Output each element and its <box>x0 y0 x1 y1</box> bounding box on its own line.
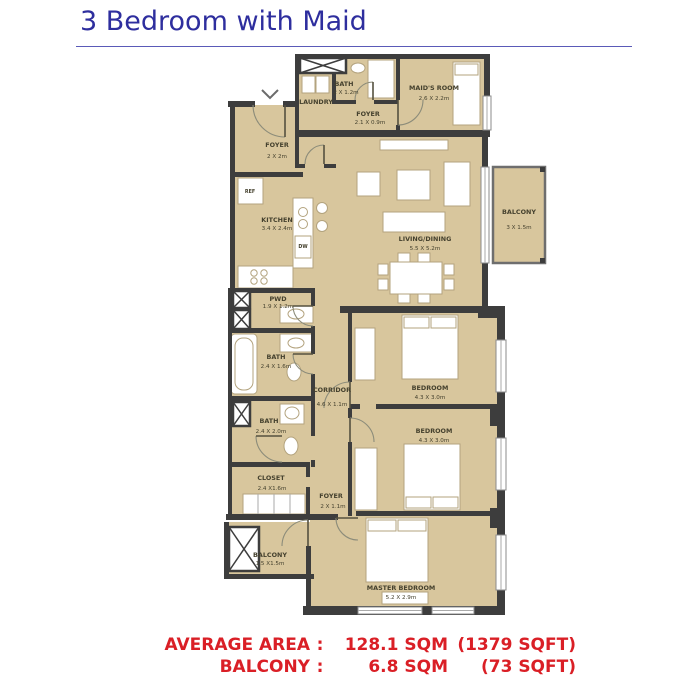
dryer <box>316 76 329 93</box>
wardrobe <box>355 448 377 510</box>
balcony-area-sqft: (73 SQFT) <box>448 656 576 678</box>
label-foyer-entry: FOYER <box>265 141 289 149</box>
dims-balcony-r: 3 X 1.5m <box>506 225 531 231</box>
dims-foyer-top: 2.1 X 0.9m <box>355 120 386 126</box>
dims-bath-mid: 2.4 X 1.6m <box>261 364 292 370</box>
dims-maids-room: 2.6 X 2.2m <box>419 96 450 102</box>
washer <box>302 76 315 93</box>
pillow <box>406 497 431 508</box>
label-bath-top: BATH <box>334 80 353 88</box>
dims-kitchen: 3.4 X 2.4m <box>262 226 293 232</box>
dims-living: 5.5 X 5.2m <box>410 246 441 252</box>
pillow <box>368 520 396 531</box>
label-laundry: LAUNDRY <box>299 98 333 106</box>
dims-master: 5.2 X 2.9m <box>386 595 417 601</box>
entry-arrow-icon <box>262 90 278 98</box>
balcony-area-label: BALCONY <box>140 656 310 678</box>
wardrobe <box>355 328 375 380</box>
stove-counter <box>238 266 293 288</box>
label-living: LIVING/DINING <box>399 235 452 243</box>
chair <box>444 264 454 275</box>
pillow <box>433 497 458 508</box>
dims-bath-top: 2 X 1.2m <box>333 90 358 96</box>
average-area-sqft: (1379 SQFT) <box>448 634 576 656</box>
floor-plan-drawing: BATH 2 X 1.2m MAID'S ROOM 2.6 X 2.2m LAU… <box>0 0 699 700</box>
label-bedroom2: BEDROOM <box>416 427 453 435</box>
bar-stool <box>317 221 328 232</box>
label-maids-room: MAID'S ROOM <box>409 84 459 92</box>
dims-bedroom1: 4.3 X 3.0m <box>415 395 446 401</box>
dims-bedroom2: 4.3 X 3.0m <box>419 438 450 444</box>
label-pwd: PWD <box>269 295 286 303</box>
label-dw: DW <box>298 244 308 250</box>
toilet <box>284 437 298 455</box>
chair <box>418 253 430 262</box>
chair <box>398 253 410 262</box>
kitchen-sink <box>299 220 308 229</box>
floor-plan-page: 3 Bedroom with Maid <box>0 0 699 700</box>
shower <box>368 60 394 98</box>
chair <box>444 279 454 290</box>
chair <box>378 264 388 275</box>
area-summary: AVERAGE AREA : 128.1 SQM (1379 SQFT) BAL… <box>140 634 576 678</box>
average-area-label: AVERAGE AREA <box>140 634 310 656</box>
label-balcony-r: BALCONY <box>502 208 536 216</box>
dims-balcony-bl: 1.5 X1.5m <box>256 561 285 567</box>
dims-pwd: 1.9 X 1.2m <box>263 304 294 310</box>
label-bath-mid: BATH <box>266 353 285 361</box>
bar-stool <box>317 203 328 214</box>
chair <box>418 294 430 303</box>
dims-bath-low: 2.4 X 2.0m <box>256 429 287 435</box>
sofa <box>444 162 470 206</box>
label-bath-low: BATH <box>259 417 278 425</box>
pillow <box>404 317 429 328</box>
pillow <box>398 520 426 531</box>
sink <box>285 407 299 419</box>
dims-foyer-entry: 2 X 2m <box>267 154 287 160</box>
label-foyer-small: FOYER <box>319 492 343 500</box>
sofa <box>383 212 445 232</box>
label-closet: CLOSET <box>257 474 285 482</box>
label-ref: REF <box>245 189 255 195</box>
console <box>380 140 448 150</box>
label-kitchen: KITCHEN <box>261 216 292 224</box>
label-master: MASTER BEDROOM <box>367 584 435 592</box>
pillow <box>455 64 478 75</box>
balcony-area-sqm: 6.8 SQM <box>330 656 448 678</box>
chair <box>398 294 410 303</box>
kitchen-sink <box>299 208 308 217</box>
tv-unit <box>357 172 380 196</box>
dims-foyer-small: 2 X 1.1m <box>320 504 345 510</box>
dims-closet: 2.4 X1.6m <box>258 486 287 492</box>
dims-corridor: 4.6 X 1.1m <box>317 402 348 408</box>
label-balcony-bl: BALCONY <box>253 551 287 559</box>
label-foyer-top: FOYER <box>356 110 380 118</box>
armchair <box>397 170 430 200</box>
colon: : <box>310 656 330 678</box>
colon: : <box>310 634 330 656</box>
balcony-area-row: BALCONY : 6.8 SQM (73 SQFT) <box>140 656 576 678</box>
dining-table <box>390 262 442 294</box>
average-area-sqm: 128.1 SQM <box>330 634 448 656</box>
label-bedroom1: BEDROOM <box>412 384 449 392</box>
chair <box>378 279 388 290</box>
sink <box>351 63 365 73</box>
average-area-row: AVERAGE AREA : 128.1 SQM (1379 SQFT) <box>140 634 576 656</box>
label-corridor: CORRIDOR <box>313 386 351 394</box>
pillow <box>431 317 456 328</box>
sink <box>288 338 304 348</box>
